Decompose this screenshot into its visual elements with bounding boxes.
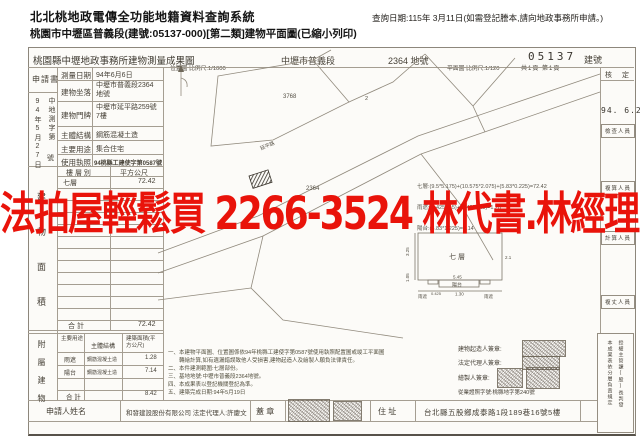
annex-area: 1.28 <box>145 355 157 361</box>
annex-structure: 鋼筋混凝土造 <box>87 369 117 376</box>
page-subtitle: 桃園市中壢區普義段(建號:05137-000)[第二類]建物平面圖(已縮小列印) <box>30 26 357 41</box>
divider <box>84 333 85 400</box>
divider <box>28 92 57 93</box>
info-value: 集合住宅 <box>96 144 124 154</box>
subject-building-mark <box>249 170 272 189</box>
info-label: 主體結構 <box>61 130 91 141</box>
road-name: 延平路 <box>259 140 276 152</box>
divider <box>28 333 163 334</box>
note-line: 二、本件建測範圍:七層部份。 <box>168 365 384 373</box>
delegation-note-col1: 本成果表依分層負責規定 <box>607 340 614 428</box>
builder-signature-label: 建物起造人簽章: <box>458 344 502 353</box>
room-label: 七層 <box>449 252 467 261</box>
divider <box>57 101 163 102</box>
info-value: 中壢市普義段2364地號 <box>96 82 160 100</box>
annex-side-label: 附屬建物 <box>36 340 47 402</box>
info-label: 建物坐落 <box>61 87 91 98</box>
note-line: 四、本成果表以登記機關登記為準。 <box>168 381 384 389</box>
application-doc-no-suffix: 號 <box>47 153 54 163</box>
annex-use: 陽台 <box>64 368 76 377</box>
canopy-label: 雨遮 <box>484 293 493 300</box>
info-label: 測量日期 <box>61 70 91 81</box>
note-line: 一、本建物平面圖、位置圖係依94年桃縣工建使字第0587號使用執照配置圖或竣工平… <box>168 349 384 357</box>
annex-total-value: 8.42 <box>145 391 157 397</box>
applicant-label: 申請人姓名 <box>46 406 86 417</box>
divider <box>57 126 163 127</box>
builder-seal-stamp <box>522 340 566 357</box>
delegation-note-box: 本成果表依分層負責規定 授權主管課(股)長判發 <box>597 333 634 433</box>
info-label: 使用執照 <box>61 157 91 168</box>
floor-total-value: 72.42 <box>138 321 156 328</box>
dim-label: 5.45 <box>453 275 462 280</box>
officer-survey: 複丈人員 <box>601 295 635 309</box>
note-line: 三、基地地號:中壢市普義段2364地號。 <box>168 373 384 381</box>
note-line: 五、建築完成日期:94年5月19日 <box>168 389 384 397</box>
balcony-label: 陽台 <box>452 282 462 289</box>
divider <box>122 333 123 400</box>
parcel-number: 3768 <box>283 94 297 100</box>
divider <box>120 400 121 421</box>
info-value: 中壢市延平路259號7樓 <box>96 104 160 122</box>
info-value: 94桃縣工建使字第0587號 <box>94 158 162 167</box>
annex-use: 雨遮 <box>64 355 76 364</box>
annex-area: 7.14 <box>145 368 157 374</box>
application-label: 申請書 <box>32 74 59 85</box>
dim-label: 1.05 <box>405 273 410 282</box>
annex-header-use: 主要用途 <box>61 336 83 343</box>
dim-label: 3.25 <box>405 247 410 256</box>
floor-cell: 七層 <box>63 178 77 188</box>
info-label: 主要用途 <box>61 144 91 155</box>
parcel-lines <box>313 50 515 132</box>
dim-label: 2.1 <box>505 255 512 260</box>
drafter-seal-stamp <box>526 367 560 389</box>
annex-header-area: 建築面積(平方公尺) <box>126 336 160 350</box>
divider <box>250 400 251 421</box>
notes-block: 一、本建物平面圖、位置圖係依94年桃縣工建使字第0587號使用執照配置圖或竣工平… <box>168 349 384 397</box>
annex-structure: 鋼筋混凝土造 <box>87 356 117 363</box>
divider <box>600 80 634 81</box>
floor-header: 樓 層 別 <box>66 168 91 178</box>
floor-total-label: 合 計 <box>68 321 84 331</box>
address-label: 住 址 <box>378 406 396 417</box>
license-number: 從業證照字號:桃縣地字第240號 <box>458 388 535 396</box>
divider <box>415 400 416 421</box>
dim-label: 1.30 <box>455 292 464 297</box>
note-line: 轉繪計算,如有遺漏錯誤致他人受損害,建物起造人及繪製人願負法律責任。 <box>168 357 384 365</box>
approval-label: 核 定 <box>605 70 633 80</box>
canopy-label: 雨遮 <box>418 293 427 300</box>
seal-label: 蓋 章 <box>256 406 274 417</box>
area-header: 平方公尺 <box>120 168 148 178</box>
divider <box>285 400 286 421</box>
divider <box>28 330 163 331</box>
annex-header-structure: 主體結構 <box>91 341 115 350</box>
land-registry-query-page: 北北桃地政電傳全功能地籍資料查詢系統 查詢日期:115年 3月11日(如需登記謄… <box>0 0 640 448</box>
auction-ad-watermark: 法拍屋輕鬆買 2266-3524 林代書.林經理 <box>0 193 640 238</box>
parcel-3768-outline <box>211 60 349 146</box>
application-date-vertical: 94年5月27日 <box>32 98 42 162</box>
divider <box>57 378 163 379</box>
divider <box>370 400 371 421</box>
applicant-seal-stamp <box>288 399 330 422</box>
system-title: 北北桃地政電傳全功能地籍資料查詢系統 <box>30 8 255 25</box>
drafter-seal-stamp <box>497 368 523 388</box>
annex-total-label: 合 計 <box>66 391 81 401</box>
dim-label: 0.425 <box>431 291 442 296</box>
approval-date-stamp: 94. 6.27 <box>601 106 640 115</box>
info-value: 94年6月6日 <box>96 70 133 80</box>
canopy-outline <box>428 280 438 284</box>
query-date: 查詢日期:115年 3月11日(如需登記謄本,請向地政事務所申請。) <box>372 12 603 24</box>
applicant-address: 台北縣五股鄉成泰路1段189巷16號5樓 <box>424 407 561 418</box>
north-arrow-icon <box>178 64 187 96</box>
delegation-note-col2: 授權主管課(股)長判發 <box>618 340 625 428</box>
legal-rep-signature-label: 法定代理人簽章: <box>458 358 502 367</box>
officer-check: 檢查人員 <box>601 124 635 138</box>
divider <box>580 400 581 421</box>
info-label: 建物門牌 <box>61 110 91 121</box>
application-doc-no: 中地測字第 <box>46 97 56 152</box>
parcel-number: 2 <box>365 96 368 102</box>
canopy-outline <box>480 280 490 284</box>
applicant-name: 和發建設股份有限公司 法定代理人:許慶文 <box>126 407 247 417</box>
info-value: 鋼筋混凝土造 <box>96 130 138 140</box>
applicant-seal-stamp <box>333 401 362 421</box>
drafter-signature-label: 繪製人簽章: <box>458 373 490 382</box>
divider <box>57 352 163 353</box>
area-cell: 72.42 <box>138 178 156 185</box>
divider <box>92 67 93 166</box>
divider <box>57 365 163 366</box>
